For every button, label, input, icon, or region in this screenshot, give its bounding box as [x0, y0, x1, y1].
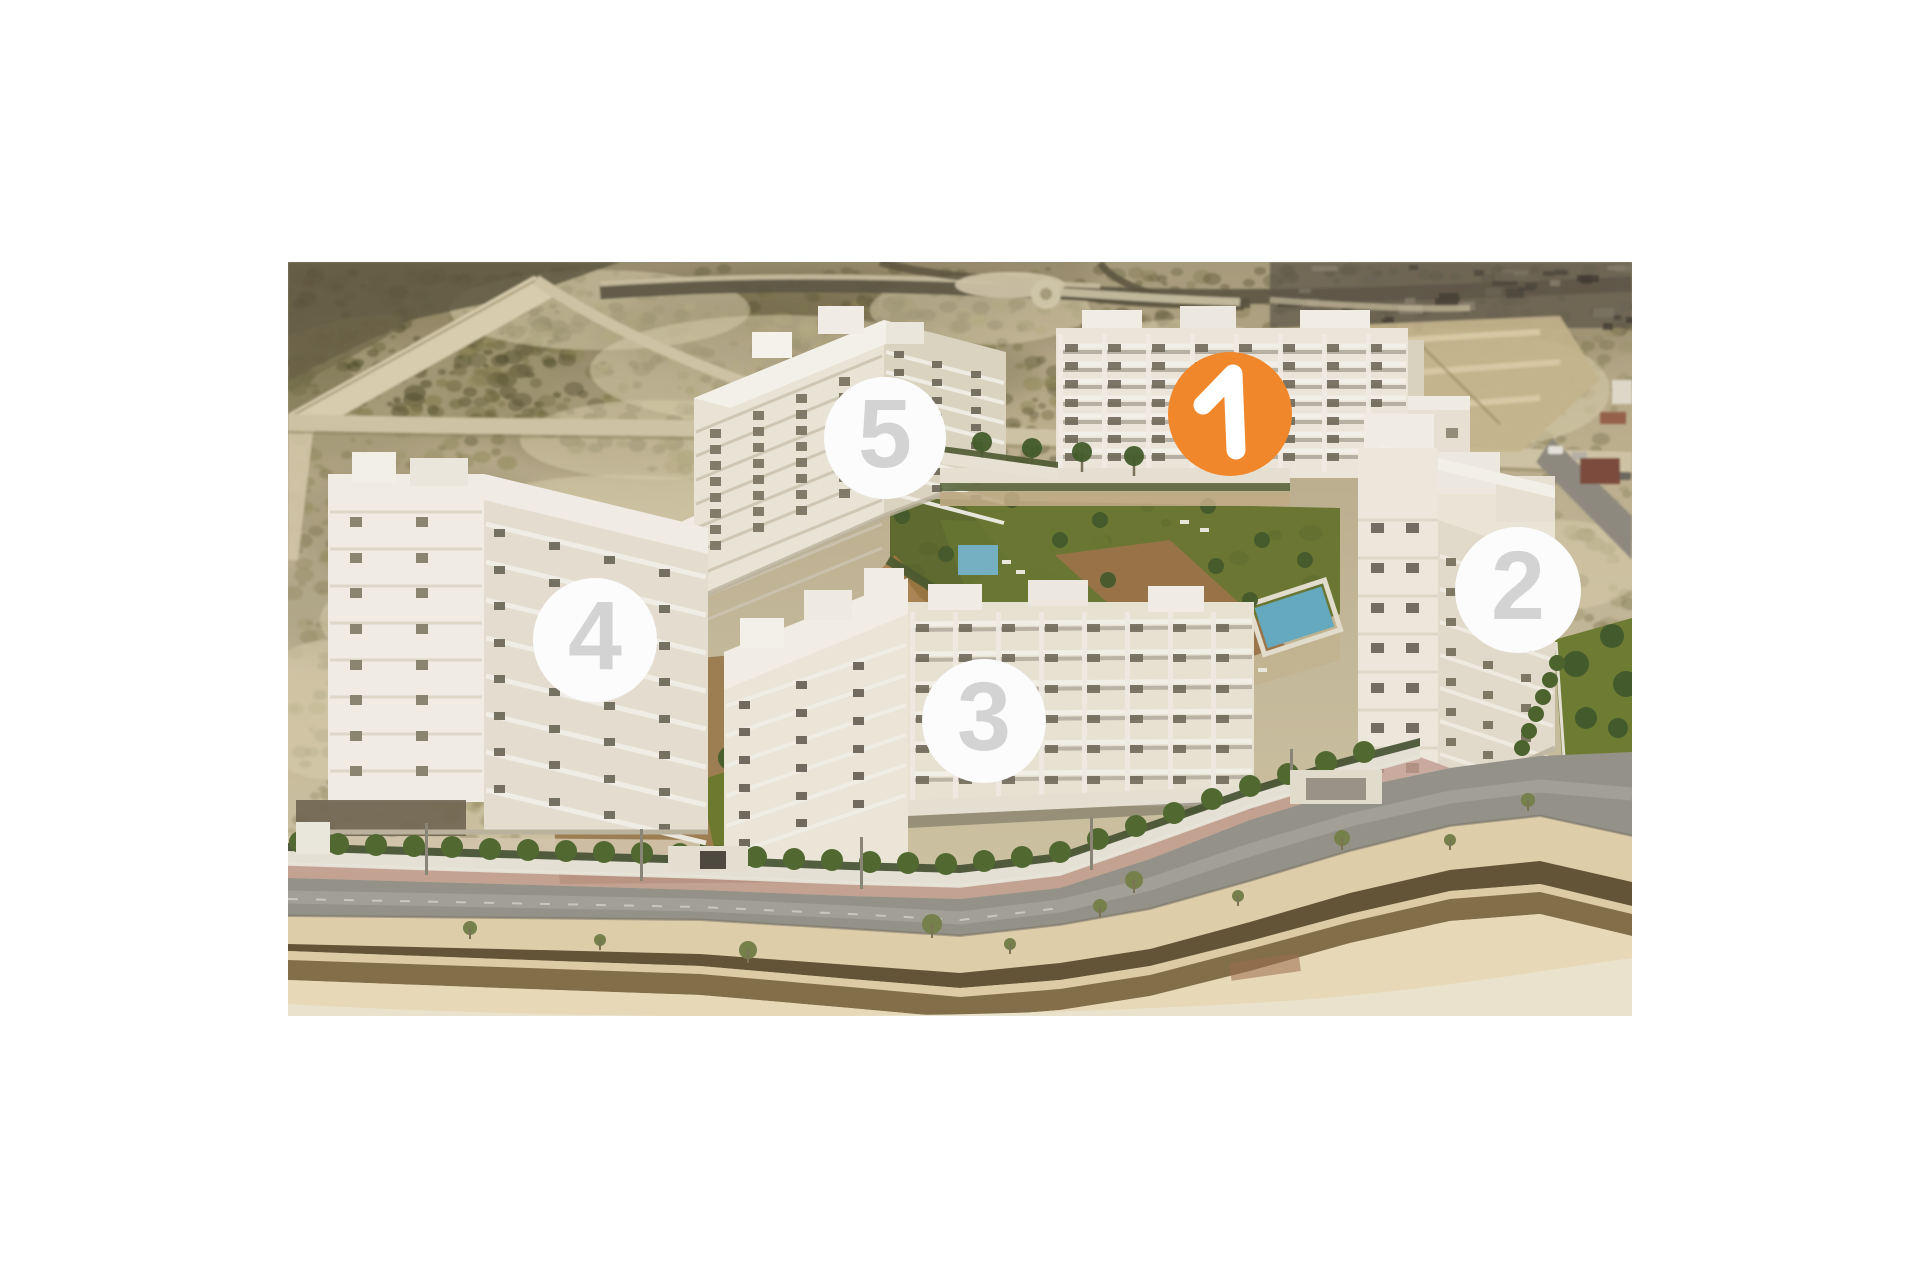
svg-text:5: 5	[858, 379, 912, 488]
svg-text:4: 4	[568, 581, 622, 690]
svg-text:3: 3	[957, 662, 1011, 771]
svg-text:2: 2	[1491, 531, 1545, 640]
